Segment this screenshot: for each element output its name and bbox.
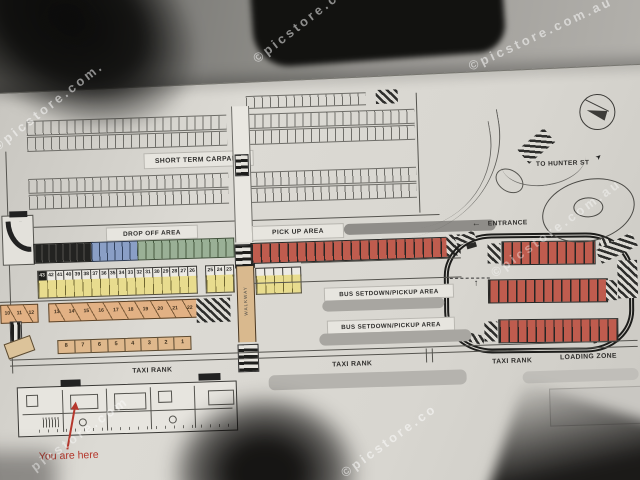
drop-off-stalls-black — [33, 242, 94, 264]
taxi-rank-label-right: TAXI RANK — [492, 357, 532, 365]
entrance-arrow-icon: ← — [472, 218, 482, 228]
entrance-label: ENTRANCE — [488, 219, 528, 227]
loop-hatch — [484, 321, 497, 341]
loop-stalls-red-bottom — [498, 318, 618, 343]
structure-wall — [9, 211, 27, 218]
bay-number: 7 — [74, 340, 91, 353]
room-fixture — [208, 390, 234, 406]
carpark-row — [246, 92, 366, 109]
bay-number: 6 — [91, 340, 108, 353]
photo-of-carpark-map: SHORT TERM CARPARK WALKWAY DROP OFF AREA… — [0, 0, 640, 480]
loop-arrow-icon: ↑ — [474, 278, 479, 288]
drop-off-stalls-green — [137, 237, 235, 260]
bay-number: 8 — [58, 341, 74, 353]
bay-number: 16 — [93, 302, 108, 319]
taxi-rank-label-middle: TAXI RANK — [332, 360, 372, 368]
bay-number: 20 — [153, 301, 168, 318]
short-term-carpark-label: SHORT TERM CARPARK — [155, 155, 243, 165]
bay-number: 14 — [64, 303, 79, 320]
wall-line — [150, 387, 152, 429]
platform-area-right — [549, 386, 640, 427]
station-building — [17, 380, 238, 437]
loop-stalls-red-middle — [488, 278, 608, 303]
drop-off-label: DROP OFF AREA — [123, 229, 181, 238]
road-mark — [432, 348, 433, 362]
fixture-circle — [169, 415, 177, 423]
bus-setdown-label-2: BUS SETDOWN/PICKUP AREA — [341, 321, 441, 331]
bay-number: 18 — [123, 302, 138, 319]
stair-hatch — [376, 89, 398, 104]
pick-up-label: PICK UP AREA — [272, 228, 324, 237]
walkway-strip: WALKWAY — [236, 266, 256, 343]
median-hatch — [617, 260, 638, 299]
bay-number: 13 — [49, 304, 64, 321]
building-entry-block — [198, 373, 220, 381]
wall-line — [62, 390, 64, 432]
compass-icon — [579, 93, 616, 130]
taxi-rank-label-left: TAXI RANK — [132, 367, 172, 375]
orange-bays-13-22: 13141516171819202122 — [48, 299, 199, 323]
bay-number: 19 — [138, 301, 153, 318]
bay-number: 10 — [1, 305, 14, 322]
you-are-here-arrowhead — [71, 401, 80, 410]
drop-off-stalls-blue — [91, 241, 139, 262]
bay-number: 15 — [79, 303, 94, 320]
tan-bays-1-8: 87654321 — [57, 336, 191, 354]
building-entry-block — [61, 379, 81, 387]
hatched-island — [196, 298, 231, 323]
bay-number: 17 — [108, 302, 123, 319]
wall-line — [194, 386, 196, 428]
bay-number: 5 — [107, 339, 124, 352]
yellow-bays-right — [205, 275, 235, 294]
bay-number: 11 — [13, 305, 26, 322]
loop-hatch — [606, 280, 617, 300]
yellow-bays-main — [37, 276, 197, 299]
walkway-ladder-marks — [235, 154, 250, 176]
platform-bar-right — [522, 368, 638, 384]
loading-zone-label: LOADING ZONE — [560, 353, 617, 362]
pick-up-label-bar: PICK UP AREA — [252, 223, 344, 241]
angled-bays — [4, 335, 36, 360]
door-ticks — [39, 424, 229, 433]
bay-number: 21 — [167, 300, 182, 317]
bus-setdown-label-1: BUS SETDOWN/PICKUP AREA — [339, 288, 439, 298]
bay-number: 2 — [157, 337, 174, 350]
bay-number: 12 — [25, 305, 38, 322]
road-mark — [426, 349, 427, 363]
room-fixture — [158, 391, 172, 403]
hunter-st-arrow-icon: ➤ — [594, 152, 604, 162]
bay-number: 3 — [140, 338, 157, 351]
yellow-bays-walkway-east — [255, 274, 302, 294]
platform-bar-middle — [268, 369, 466, 390]
bay-number: 4 — [124, 338, 141, 351]
bay-number: 1 — [174, 337, 191, 350]
walkway-label: WALKWAY — [243, 286, 249, 315]
room-fixture — [26, 395, 38, 407]
stairs — [43, 417, 59, 427]
